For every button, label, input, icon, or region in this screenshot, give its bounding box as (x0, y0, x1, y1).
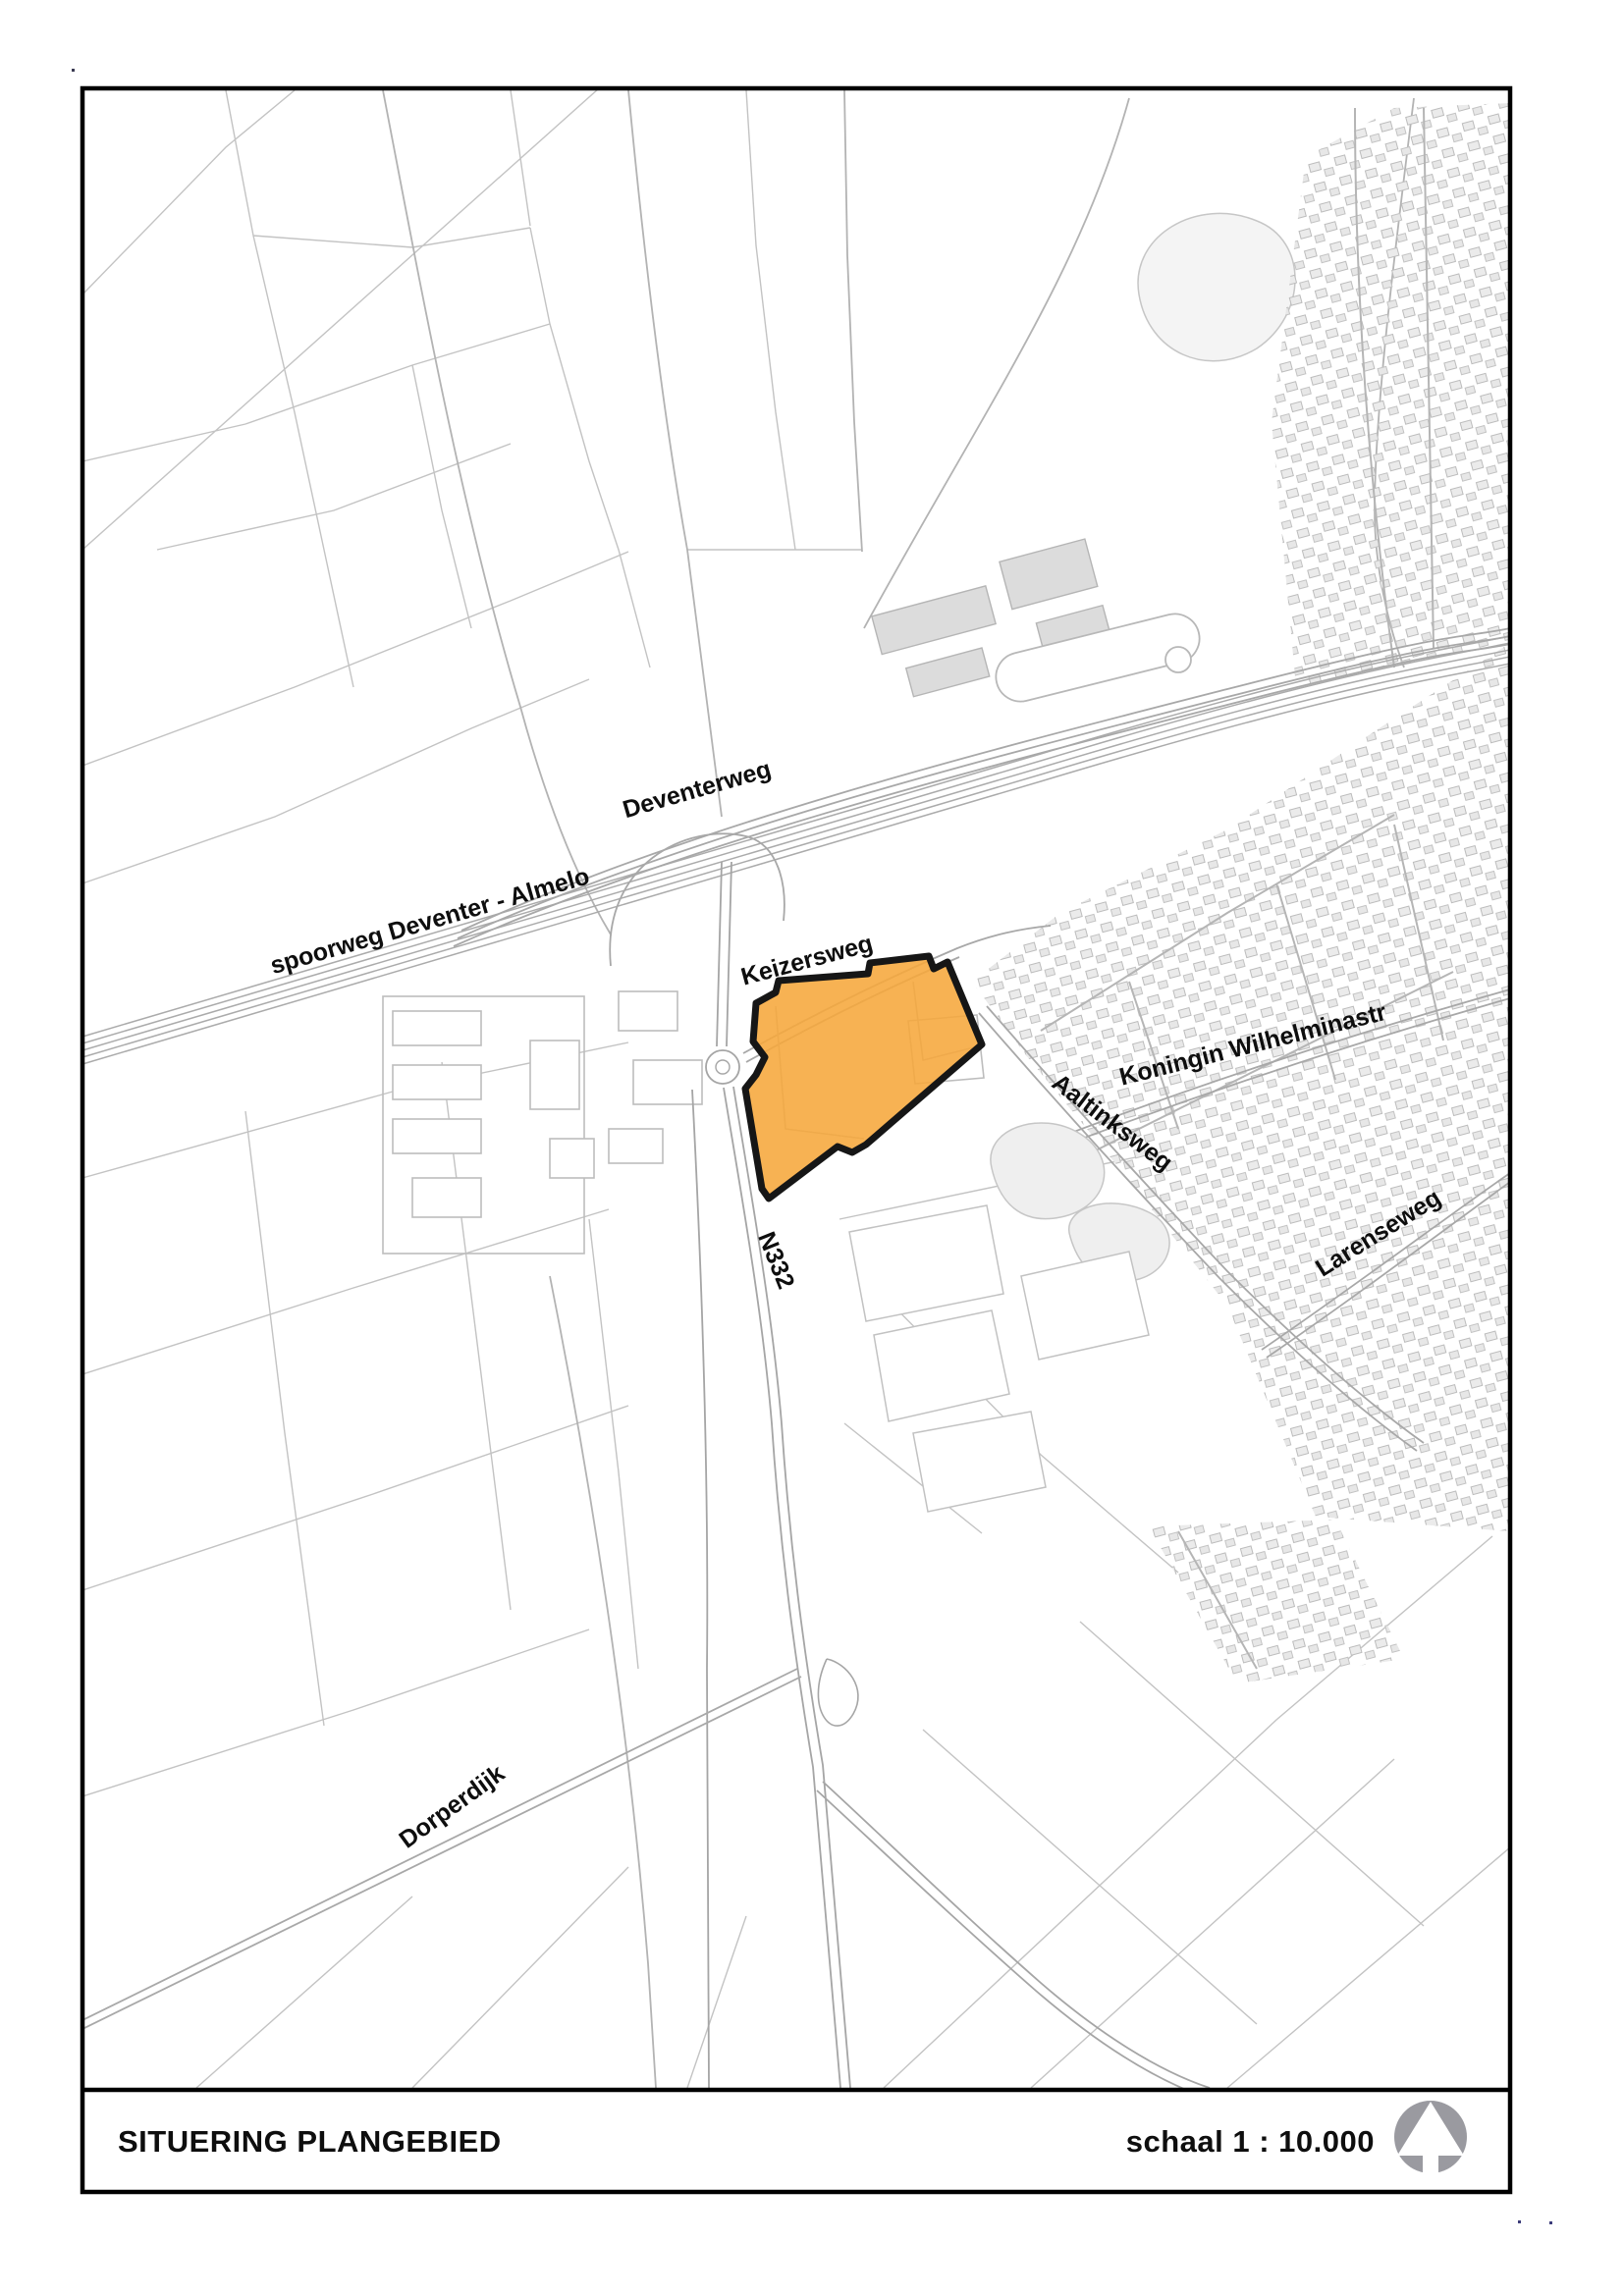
urban-area-south (1149, 1520, 1404, 1683)
road-label-deventerweg: Deventerweg (620, 755, 774, 824)
lake-outline (1138, 213, 1295, 360)
footer-title: SITUERING PLANGEBIED (118, 2124, 502, 2159)
dorperdijk-road (82, 1669, 801, 2029)
industrial-buildings (383, 991, 702, 1254)
footer-scale-label: schaal 1 : 10.000 (1126, 2124, 1375, 2159)
footer-bar: SITUERING PLANGEBIED schaal 1 : 10.000 (118, 2101, 1467, 2174)
north-arrow-icon (1394, 2101, 1467, 2174)
road-label-n332: N332 (752, 1228, 799, 1293)
map-canvas: Deventerweg spoorweg Deventer - Almelo K… (82, 88, 1510, 2097)
urban-area-northeast (1272, 103, 1510, 687)
plan-location-page: Deventerweg spoorweg Deventer - Almelo K… (0, 0, 1624, 2296)
plan-area-polygon (745, 956, 982, 1199)
road-label-dorperdijk: Dorperdijk (394, 1759, 510, 1853)
situering-plangebied-map: Deventerweg spoorweg Deventer - Almelo K… (0, 0, 1624, 2296)
